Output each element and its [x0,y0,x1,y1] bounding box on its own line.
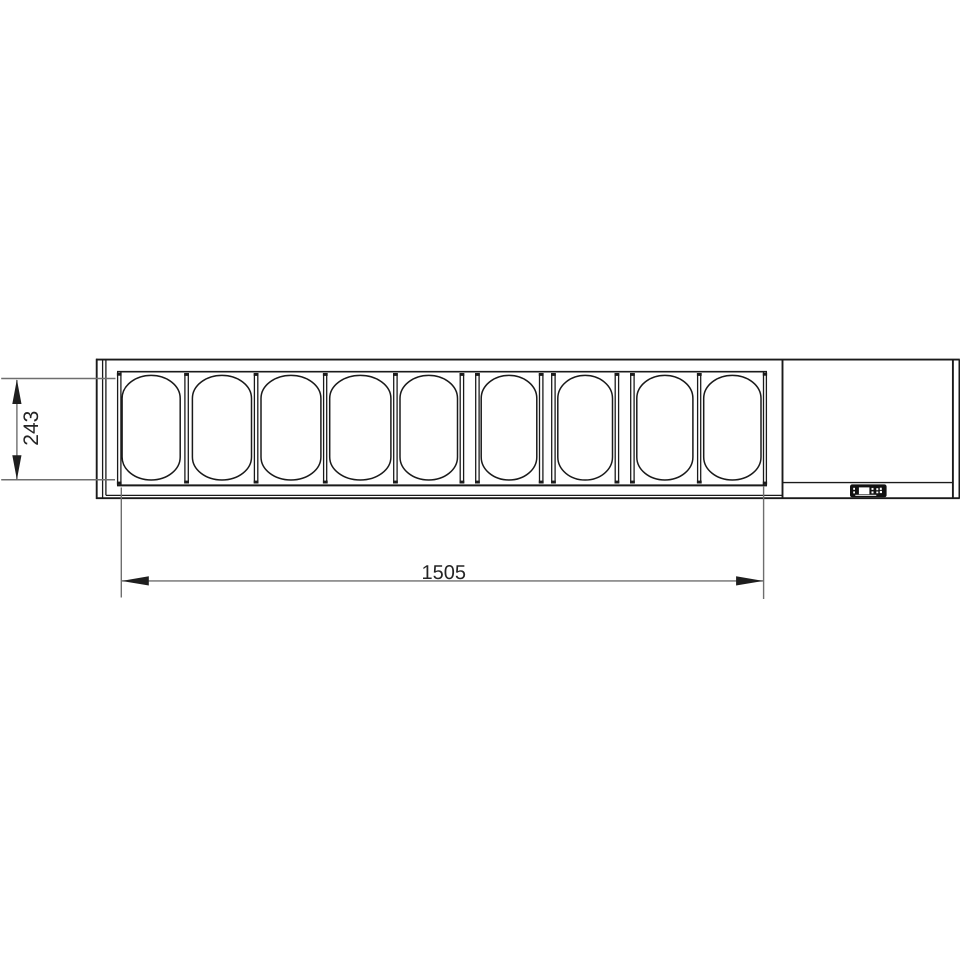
svg-text:243: 243 [20,411,43,446]
svg-text:1505: 1505 [422,562,467,584]
